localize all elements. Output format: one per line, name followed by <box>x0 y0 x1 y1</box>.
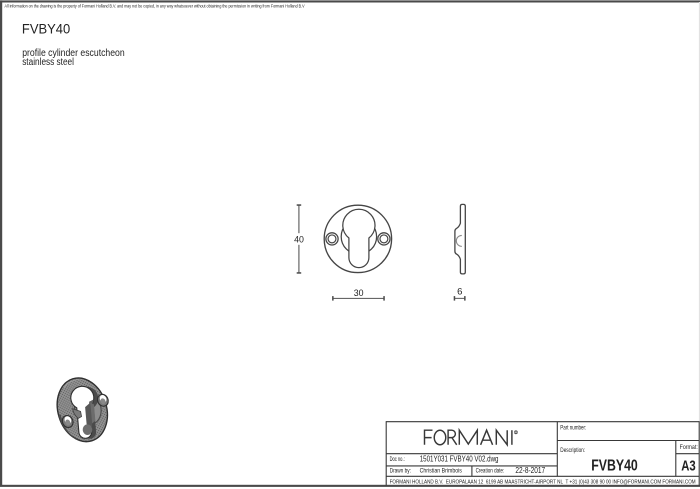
svg-text:Doc no.:: Doc no.: <box>390 456 405 463</box>
svg-text:All information on the drawing: All information on the drawing is the pr… <box>5 4 305 9</box>
svg-text:Drawn by:: Drawn by: <box>390 468 411 475</box>
svg-text:30: 30 <box>354 288 364 299</box>
svg-text:stainless steel: stainless steel <box>22 57 74 68</box>
svg-text:6: 6 <box>457 287 462 298</box>
svg-text:Christian Brimbois: Christian Brimbois <box>420 468 462 475</box>
svg-text:FVBY40: FVBY40 <box>591 457 638 474</box>
svg-text:Part number:: Part number: <box>560 424 586 431</box>
svg-text:FORMANI HOLLAND B.V. EUROPALA: FORMANI HOLLAND B.V. EUROPALAAN 12 6199 … <box>390 479 696 485</box>
svg-text:Format:: Format: <box>680 444 698 451</box>
svg-text:22-8-2017: 22-8-2017 <box>515 466 545 475</box>
svg-text:A3: A3 <box>681 458 696 474</box>
svg-text:1501Y031 FVBY40 V02.dwg: 1501Y031 FVBY40 V02.dwg <box>420 455 499 464</box>
svg-text:40: 40 <box>294 235 304 246</box>
svg-text:Creation date:: Creation date: <box>476 468 505 475</box>
svg-text:FVBY40: FVBY40 <box>22 21 70 37</box>
svg-text:Description:: Description: <box>560 447 585 454</box>
